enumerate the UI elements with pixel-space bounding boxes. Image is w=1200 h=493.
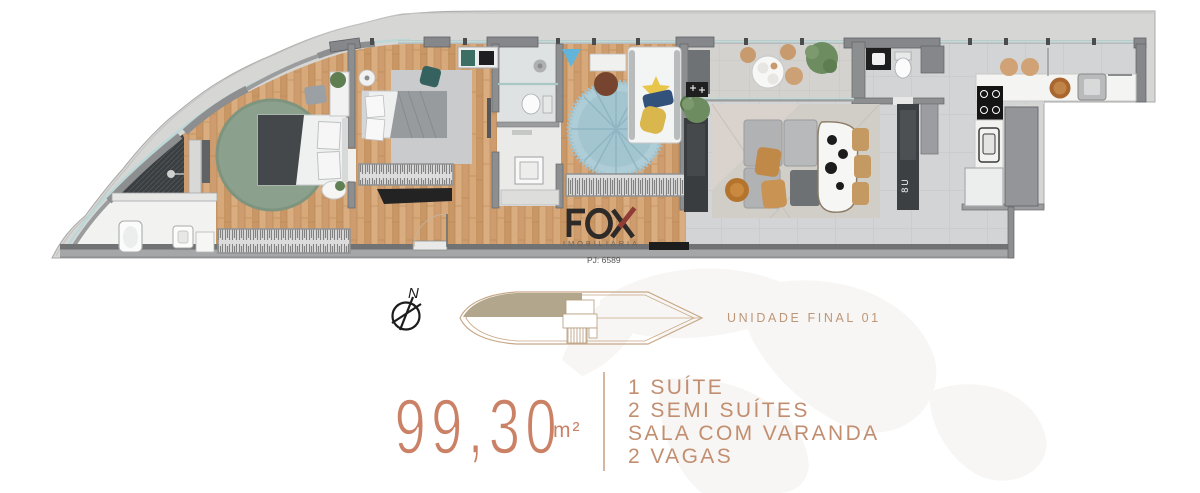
svg-text:m²: m²: [553, 419, 582, 442]
svg-text:8U: 8U: [900, 177, 910, 193]
svg-text:99,30: 99,30: [395, 383, 563, 470]
svg-text:UNIDADE FINAL 01: UNIDADE FINAL 01: [727, 311, 881, 325]
svg-text:2 VAGAS: 2 VAGAS: [628, 445, 733, 468]
svg-text:2 SEMI SUÍTES: 2 SEMI SUÍTES: [628, 399, 810, 422]
svg-text:1 SUÍTE: 1 SUÍTE: [628, 376, 724, 399]
svg-text:IMOBILIÁRIA: IMOBILIÁRIA: [563, 239, 640, 248]
svg-text:SALA COM VARANDA: SALA COM VARANDA: [628, 422, 880, 445]
svg-text:PJ: 6589: PJ: 6589: [587, 255, 621, 265]
svg-text:N: N: [408, 285, 419, 302]
